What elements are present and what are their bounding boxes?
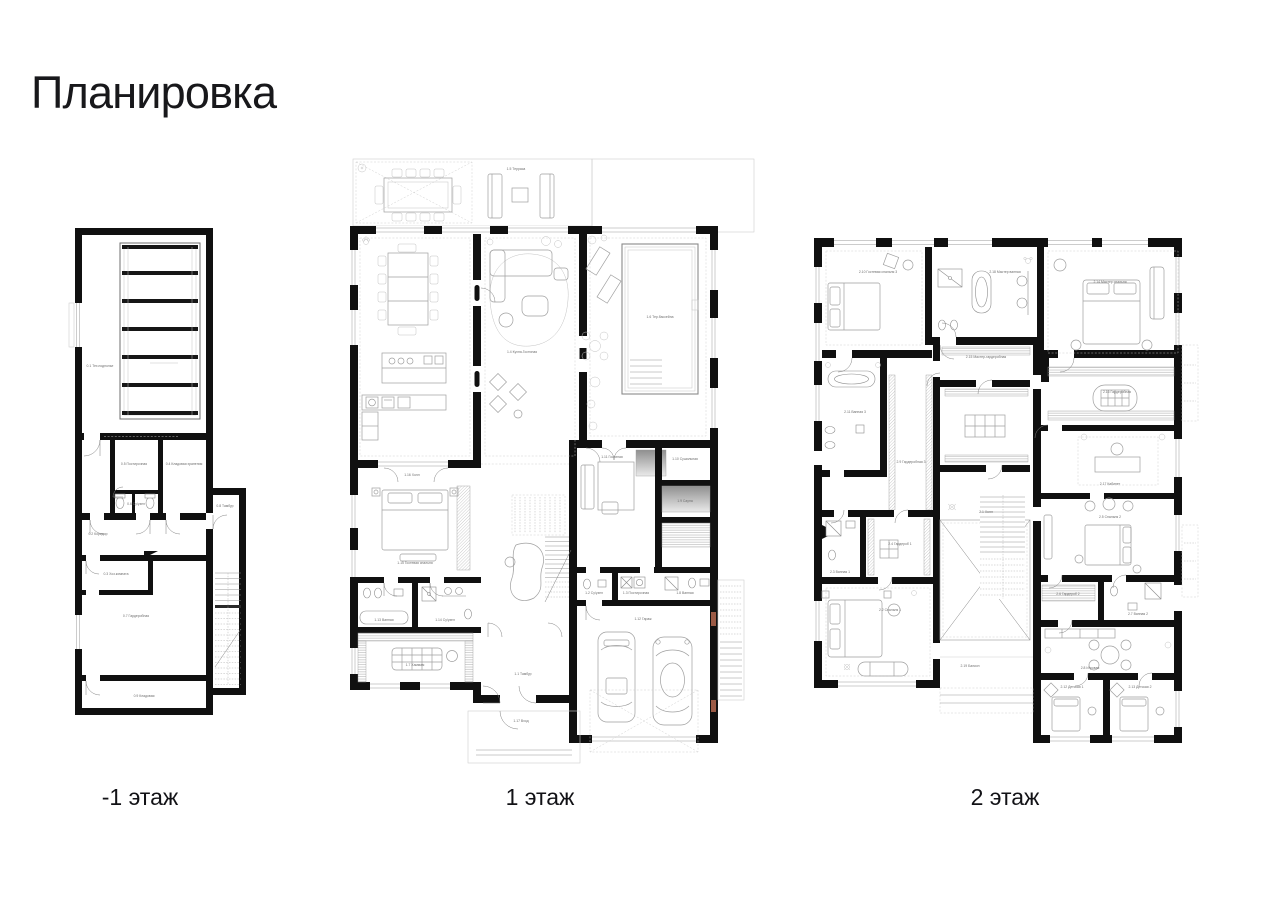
room-label: 2.16 Гардеробная — [1103, 390, 1131, 394]
room-label: 2.19 Балкон — [961, 664, 980, 668]
room-label: 0.1 Тех.подполье — [87, 364, 114, 368]
floor-plan-second: 2.10 Гостевая спальня 32.18 Мастер ванна… — [790, 225, 1210, 765]
room-label: 1.4 Кухня-Гостиная — [507, 350, 537, 354]
room-label: 2.14 Мастер спальня — [1093, 280, 1126, 284]
room-label: 0.6 Су/узел — [127, 502, 145, 506]
floor-caption-minus-1: -1 этаж — [102, 784, 179, 811]
room-label: 1.3 Постирочная — [623, 591, 649, 595]
room-label: 1.9 Сауна — [677, 499, 693, 503]
room-label: 2.13 Детская 2 — [1129, 685, 1152, 689]
room-label: 1.7 Хаммам — [406, 663, 425, 667]
room-label: 1.12 Гараж — [634, 617, 652, 621]
room-label: 2.12 Детская 1 — [1061, 685, 1084, 689]
room-label: 1.8 Ванная — [676, 591, 693, 595]
room-label: 1.14 Су/узел — [435, 618, 455, 622]
room-label: 2.11 Ванная 3 — [844, 410, 866, 414]
floor-caption-2: 2 этаж — [971, 784, 1040, 811]
room-label: 1.16 Холл — [404, 473, 420, 477]
room-label: 1.6 Тер.бассейна — [647, 315, 674, 319]
room-label: 2.18 Мастер ванная — [989, 270, 1020, 274]
room-label: 0.5 Постирочная — [121, 462, 147, 466]
room-label: 0.3 Хоз.комната — [103, 572, 128, 576]
room-label: 1.1 Тамбур — [514, 672, 531, 676]
room-label: 2.5 Спальня 2 — [1099, 515, 1121, 519]
room-label: 0.7 Гардеробная — [123, 614, 149, 618]
room-label: 0.9 Кладовая — [134, 694, 155, 698]
room-label: 0.2 Коридор — [88, 532, 107, 536]
room-label: 2.10 Гостевая спальня 3 — [859, 270, 897, 274]
room-label: 2.6 Гардероб 2 — [1056, 592, 1080, 596]
room-label: 1.11 Гостиная — [601, 455, 623, 459]
floor-plan-first: 1.5 Терраса1.4 Кухня-Гостиная1.6 Тер.бас… — [340, 150, 760, 770]
room-label: 2.9 Гардеробная 3 — [897, 460, 926, 464]
floor-plan-first-drawing: 1.5 Терраса1.4 Кухня-Гостиная1.6 Тер.бас… — [340, 150, 760, 770]
floor-plan-basement: 0.1 Тех.подполье0.5 Постирочная0.4 Кладо… — [60, 215, 260, 735]
room-label: 2.1 Холл — [979, 510, 993, 514]
room-label: 0.8 Тамбур — [216, 504, 233, 508]
room-label: 1.13 Ванная — [374, 618, 393, 622]
room-label: 2.3 Ванная 1 — [830, 570, 850, 574]
room-label: 1.2 Су/узел — [585, 591, 603, 595]
floorplan-page: { "page": { "title": "Планировка" }, "pa… — [0, 0, 1280, 904]
room-label: 2.17 Кабинет — [1100, 482, 1121, 486]
room-label: 2.8 Игровая — [1081, 666, 1100, 670]
room-label: 2.7 Ванная 2 — [1128, 612, 1148, 616]
room-label: 1.15 Гостевая спальня — [397, 561, 433, 565]
room-label: 0.4 Кладовая хранения — [166, 462, 203, 466]
floor-plan-second-drawing: 2.10 Гостевая спальня 32.18 Мастер ванна… — [790, 225, 1210, 765]
room-label: 1.5 Терраса — [507, 167, 526, 171]
room-label: 2.15 Мастер-гардеробная — [966, 355, 1007, 359]
room-label: 1.17 Вход — [513, 719, 528, 723]
floor-plan-basement-drawing: 0.1 Тех.подполье0.5 Постирочная0.4 Кладо… — [60, 215, 260, 735]
page-title: Планировка — [31, 68, 276, 118]
room-label: 1.10 Сушильная — [672, 457, 698, 461]
room-label: 2.2 Спальня 1 — [879, 608, 901, 612]
floor-caption-1: 1 этаж — [506, 784, 575, 811]
room-label: 2.4 Гардероб 1 — [888, 542, 912, 546]
